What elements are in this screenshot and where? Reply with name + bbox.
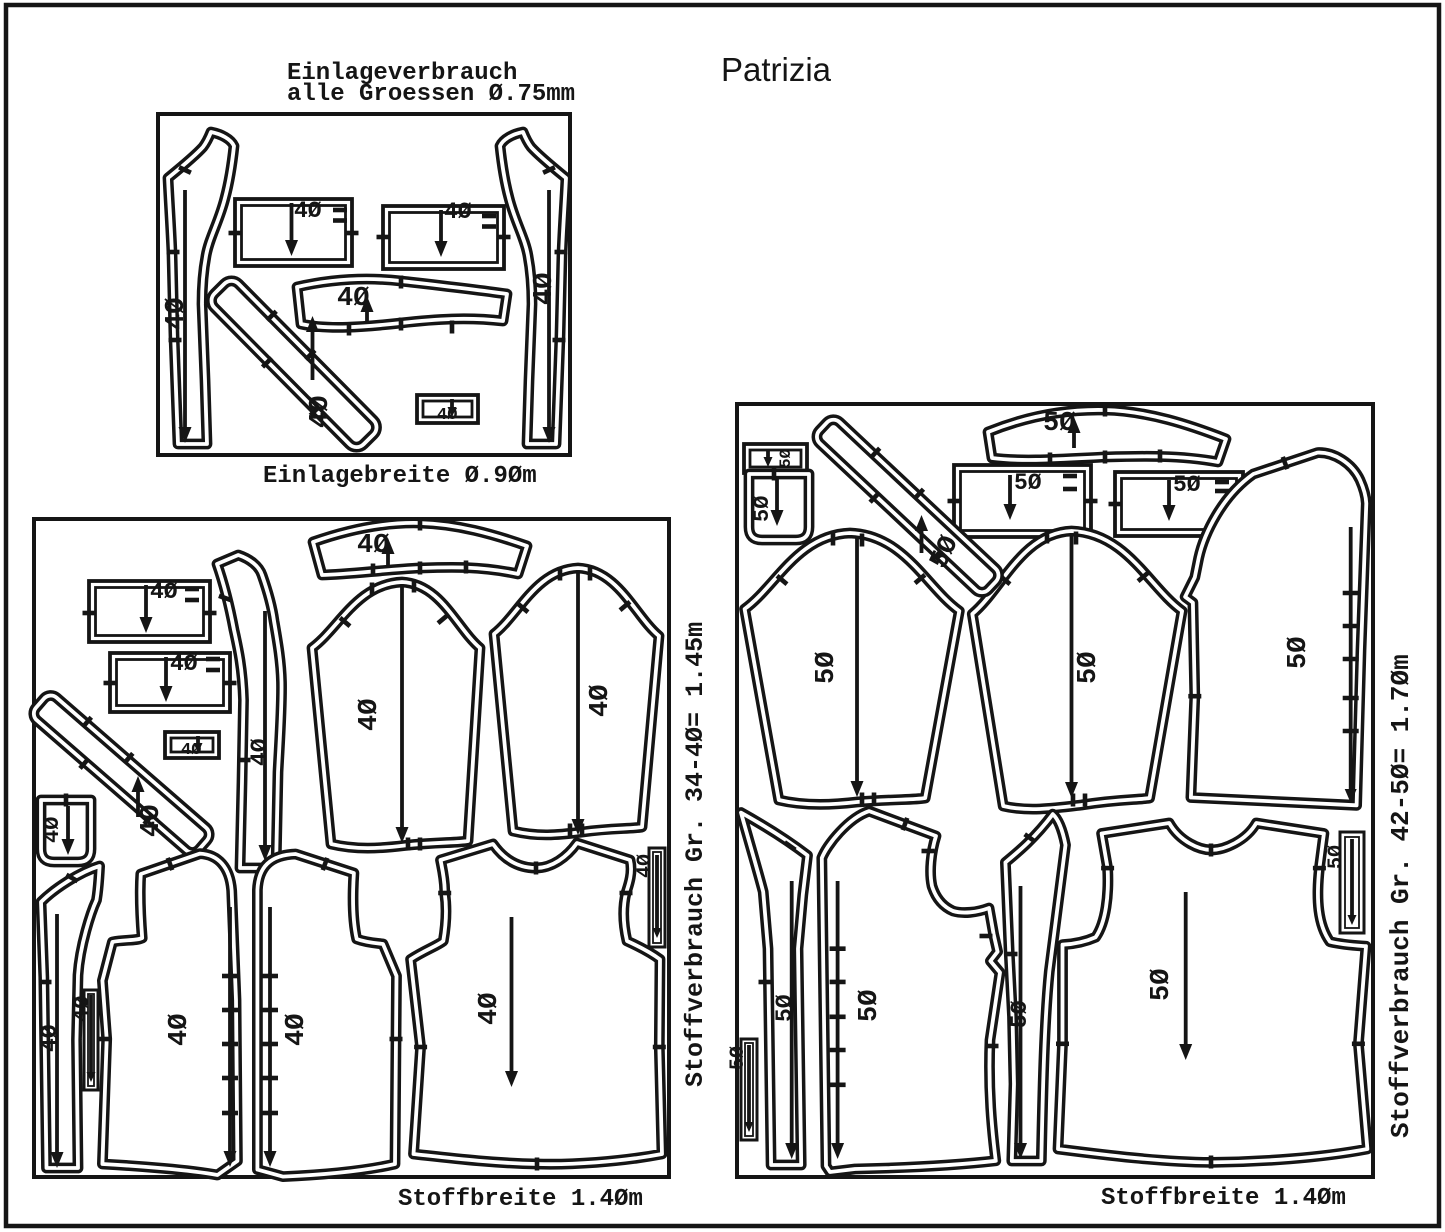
svg-text:5Ø: 5Ø bbox=[1074, 652, 1104, 684]
svg-text:5Ø: 5Ø bbox=[1173, 472, 1201, 498]
svg-text:Stoffverbrauch Gr. 34-4Ø= 1.45: Stoffverbrauch Gr. 34-4Ø= 1.45m bbox=[681, 622, 710, 1087]
svg-text:5Ø: 5Ø bbox=[750, 496, 775, 522]
svg-text:4Ø: 4Ø bbox=[306, 396, 336, 428]
svg-text:4Ø: 4Ø bbox=[530, 273, 560, 305]
svg-text:4Ø: 4Ø bbox=[586, 685, 616, 717]
svg-text:Einlagebreite Ø.9Øm: Einlagebreite Ø.9Øm bbox=[263, 463, 537, 490]
svg-text:alle Groessen Ø.75mm: alle Groessen Ø.75mm bbox=[287, 81, 575, 108]
svg-text:Stoffbreite 1.4Øm: Stoffbreite 1.4Øm bbox=[398, 1186, 643, 1213]
svg-text:5Ø: 5Ø bbox=[1043, 409, 1075, 439]
svg-text:4Ø: 4Ø bbox=[444, 199, 472, 225]
svg-text:5Ø: 5Ø bbox=[772, 994, 798, 1022]
svg-text:4Ø: 4Ø bbox=[475, 993, 505, 1025]
svg-text:4Ø: 4Ø bbox=[40, 817, 65, 843]
svg-text:4Ø: 4Ø bbox=[162, 298, 192, 330]
svg-text:5Ø: 5Ø bbox=[1147, 969, 1177, 1001]
svg-text:4Ø: 4Ø bbox=[137, 805, 167, 837]
svg-text:5Ø: 5Ø bbox=[855, 990, 885, 1022]
svg-text:5Ø: 5Ø bbox=[727, 1046, 750, 1070]
svg-text:5Ø: 5Ø bbox=[1014, 470, 1042, 496]
svg-text:5Ø: 5Ø bbox=[1325, 845, 1348, 869]
svg-text:Patrizia: Patrizia bbox=[721, 51, 832, 88]
svg-text:5Ø: 5Ø bbox=[812, 652, 842, 684]
svg-text:5Ø: 5Ø bbox=[777, 448, 795, 468]
svg-text:4Ø: 4Ø bbox=[355, 699, 385, 731]
svg-text:4Ø: 4Ø bbox=[170, 651, 198, 677]
svg-text:Stoffverbrauch Gr. 42-5Ø= 1.7Ø: Stoffverbrauch Gr. 42-5Ø= 1.7Øm bbox=[1386, 654, 1416, 1138]
svg-text:4Ø: 4Ø bbox=[634, 854, 657, 878]
svg-text:4Ø: 4Ø bbox=[150, 579, 178, 605]
svg-text:4Ø: 4Ø bbox=[37, 1024, 63, 1052]
svg-text:4Ø: 4Ø bbox=[165, 1014, 195, 1046]
svg-text:5Ø: 5Ø bbox=[1284, 637, 1314, 669]
svg-text:4Ø: 4Ø bbox=[357, 531, 389, 561]
svg-text:4Ø: 4Ø bbox=[282, 1014, 312, 1046]
svg-text:4Ø: 4Ø bbox=[294, 198, 322, 224]
svg-text:Stoffbreite 1.4Øm: Stoffbreite 1.4Øm bbox=[1101, 1185, 1346, 1212]
svg-text:4Ø: 4Ø bbox=[247, 738, 273, 766]
svg-text:5Ø: 5Ø bbox=[1007, 1000, 1033, 1028]
